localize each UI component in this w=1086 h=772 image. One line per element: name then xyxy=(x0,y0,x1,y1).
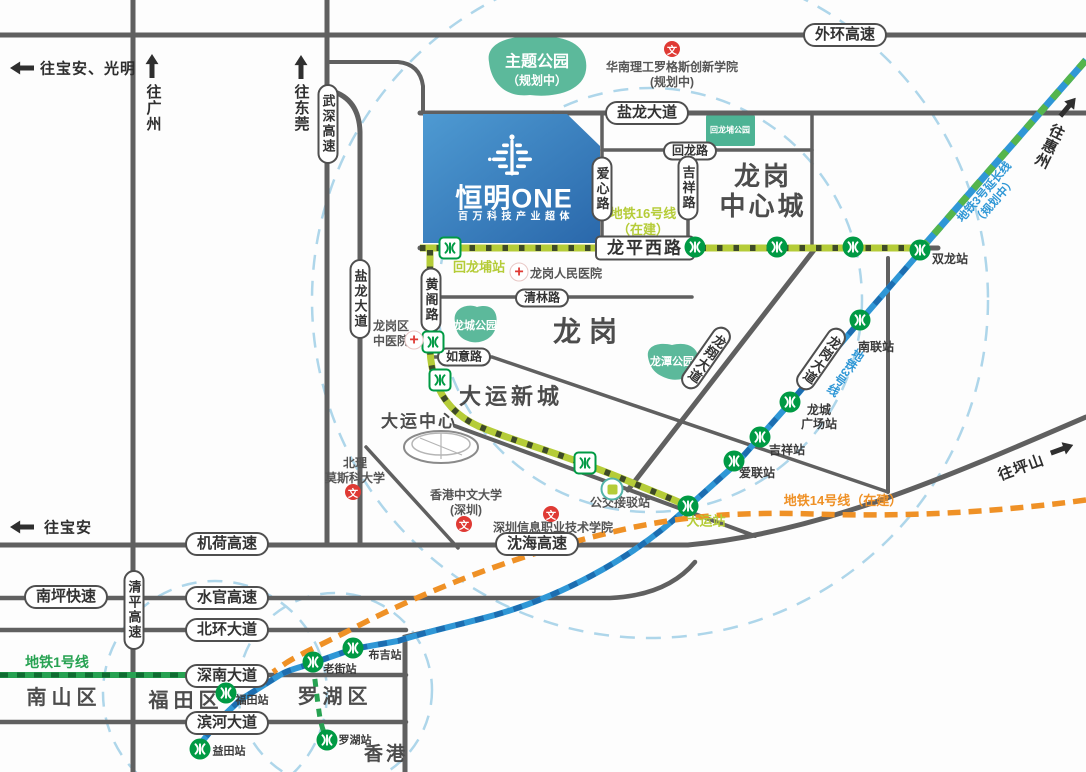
pill-yanlong-avenue-v: 盐龙大道 xyxy=(350,259,371,339)
poi-label-bus-shuttle-stop: 公交接驳站 xyxy=(590,496,650,511)
station-icon-yitian-station xyxy=(190,739,211,760)
to-baoan-guangming-arrow-icon xyxy=(10,62,34,75)
station-label-nanlian-station: 南联站 xyxy=(858,340,894,354)
district-label-dayun-center: 大运中心 xyxy=(381,412,457,432)
station-label-yitian-station: 益田站 xyxy=(213,746,246,759)
pill-waihuan-expressway: 外环高速 xyxy=(803,23,887,47)
station-label-futian-station: 福田站 xyxy=(236,695,269,708)
station-icon-luohu-station xyxy=(317,730,338,751)
station-icon-jixiang-station xyxy=(750,427,771,448)
station-icon-unlabeled-4 xyxy=(422,331,445,354)
poi-label-cuhk-shenzhen: 香港中文大学(深圳) xyxy=(430,488,502,518)
station-icon-shuanglong-station xyxy=(910,240,931,261)
cuhk-shenzhen-school-icon: 文 xyxy=(456,516,472,532)
pill-wushen-expressway: 武深高速 xyxy=(318,84,339,164)
station-icon-dayun-station xyxy=(678,496,699,517)
station-icon-huilongpu-station xyxy=(439,237,462,260)
station-label-longcheng-square-station: 龙城广场站 xyxy=(801,403,837,431)
pill-shenhai-expressway: 沈海高速 xyxy=(495,532,579,556)
station-label-ailian-station: 爱联站 xyxy=(739,466,775,480)
station-icon-unlabeled-5 xyxy=(429,369,452,392)
sz-info-tech-college-school-icon: 文 xyxy=(543,506,559,522)
station-icon-laojie-station xyxy=(303,652,324,673)
station-label-buji-station: 布吉站 xyxy=(369,650,402,663)
station-icon-ailian-station xyxy=(724,451,745,472)
station-label-huilongpu-station: 回龙埔站 xyxy=(453,260,505,275)
station-icon-unlabeled-6 xyxy=(574,452,597,475)
station-label-shuanglong-station: 双龙站 xyxy=(932,252,968,266)
park-label-longcheng-park: 龙城公园 xyxy=(453,317,497,333)
to-guangzhou-arrow-icon xyxy=(146,54,159,78)
pill-shuiguan-expressway: 水官高速 xyxy=(185,586,269,610)
line-label-line1-label: 地铁1号线 xyxy=(25,653,89,671)
longgang-peoples-hospital-hospital-icon: + xyxy=(510,263,529,282)
to-baoan-guangming-label: 往宝安、光明 xyxy=(40,58,136,79)
to-pingshan-arrow-icon xyxy=(1049,439,1076,459)
pill-longping-west-road: 龙平西路 xyxy=(595,236,695,261)
to-pingshan-label: 往坪山 xyxy=(995,449,1047,485)
scut-rutgers-college-school-icon: 文 xyxy=(664,41,680,57)
station-label-jixiang-station: 吉祥站 xyxy=(769,443,805,457)
pill-huangge-road: 黄阁路 xyxy=(421,268,442,333)
pill-qingping-expressway: 清平高速 xyxy=(124,570,145,650)
station-icon-nanlian-station xyxy=(850,310,871,331)
station-icon-buji-station xyxy=(343,638,364,659)
line-label-line16-label: 地铁16号线（在建） xyxy=(610,206,676,238)
pill-qinglin-road: 清林路 xyxy=(515,289,569,308)
station-icon-unlabeled-3 xyxy=(843,237,864,258)
station-icon-unlabeled-2 xyxy=(767,237,788,258)
location-map: 恒明ONE 百万科技产业超体 外环高速盐龙大道回龙路龙平西路清林路如意路机荷高速… xyxy=(0,0,1086,772)
line-label-line3ext-label: 地铁3号延长线（规划中） xyxy=(955,159,1026,234)
building-tagline: 百万科技产业超体 xyxy=(458,208,574,223)
poi-label-longgang-tcm-hospital: 龙岗区中医院 xyxy=(373,319,409,349)
to-baoan-label: 往宝安 xyxy=(44,517,92,538)
district-label-nanshan-district: 南山区 xyxy=(27,686,102,710)
park-label-theme-park: 主题公园（规划中） xyxy=(505,48,569,89)
station-icon-unlabeled-1 xyxy=(685,237,706,258)
line-label-line14-label: 地铁14号线（在建） xyxy=(784,493,902,509)
longgang-tcm-hospital-hospital-icon: + xyxy=(405,331,424,350)
poi-label-longgang-peoples-hospital: 龙岗人民医院 xyxy=(530,267,602,282)
pill-ruyi-road: 如意路 xyxy=(437,348,491,367)
to-dongguan-label: 往东莞 xyxy=(291,84,312,132)
to-huizhou-label: 往惠州 xyxy=(1029,120,1069,172)
district-label-luohu-district: 罗湖区 xyxy=(298,685,373,709)
station-icon-longcheng-square-station xyxy=(780,392,801,413)
poi-label-bit-moscow-university: 北理莫斯科大学 xyxy=(325,456,385,486)
district-label-futian-district: 福田区 xyxy=(149,689,224,713)
park-label-huilongpu-park: 回龙埔公园 xyxy=(710,125,750,136)
district-label-longgang-central-city: 龙岗中心城 xyxy=(719,161,806,221)
bit-moscow-university-school-icon: 文 xyxy=(345,484,361,500)
map-overlay: 恒明ONE 百万科技产业超体 外环高速盐龙大道回龙路龙平西路清林路如意路机荷高速… xyxy=(0,0,1086,772)
to-baoan-arrow-icon xyxy=(10,521,34,534)
to-dongguan-arrow-icon xyxy=(295,55,308,79)
station-label-dayun-station: 大运站 xyxy=(686,514,725,529)
pill-beihuan-avenue: 北环大道 xyxy=(185,618,269,642)
bus-shuttle-stop-bus-icon xyxy=(601,478,624,501)
pill-jihe-expressway: 机荷高速 xyxy=(185,532,269,556)
pill-nanping-expressway: 南坪快速 xyxy=(24,585,108,609)
to-huizhou-arrow-icon xyxy=(1055,94,1080,121)
station-icon-futian-station xyxy=(216,683,237,704)
pill-yanlong-avenue-h: 盐龙大道 xyxy=(605,101,689,125)
station-label-luohu-station: 罗湖站 xyxy=(339,735,372,748)
pill-binhe-avenue: 滨河大道 xyxy=(185,711,269,735)
station-label-laojie-station: 老街站 xyxy=(324,664,357,677)
pill-jixiang-road: 吉祥路 xyxy=(678,156,699,221)
district-label-dayun-new-town: 大运新城 xyxy=(459,384,563,410)
district-label-longgang: 龙岗 xyxy=(553,316,625,348)
to-guangzhou-label: 往广州 xyxy=(143,84,164,132)
pill-aixin-road: 爱心路 xyxy=(592,157,613,222)
poi-label-scut-rutgers-college: 华南理工罗格斯创新学院(规划中) xyxy=(606,60,738,90)
